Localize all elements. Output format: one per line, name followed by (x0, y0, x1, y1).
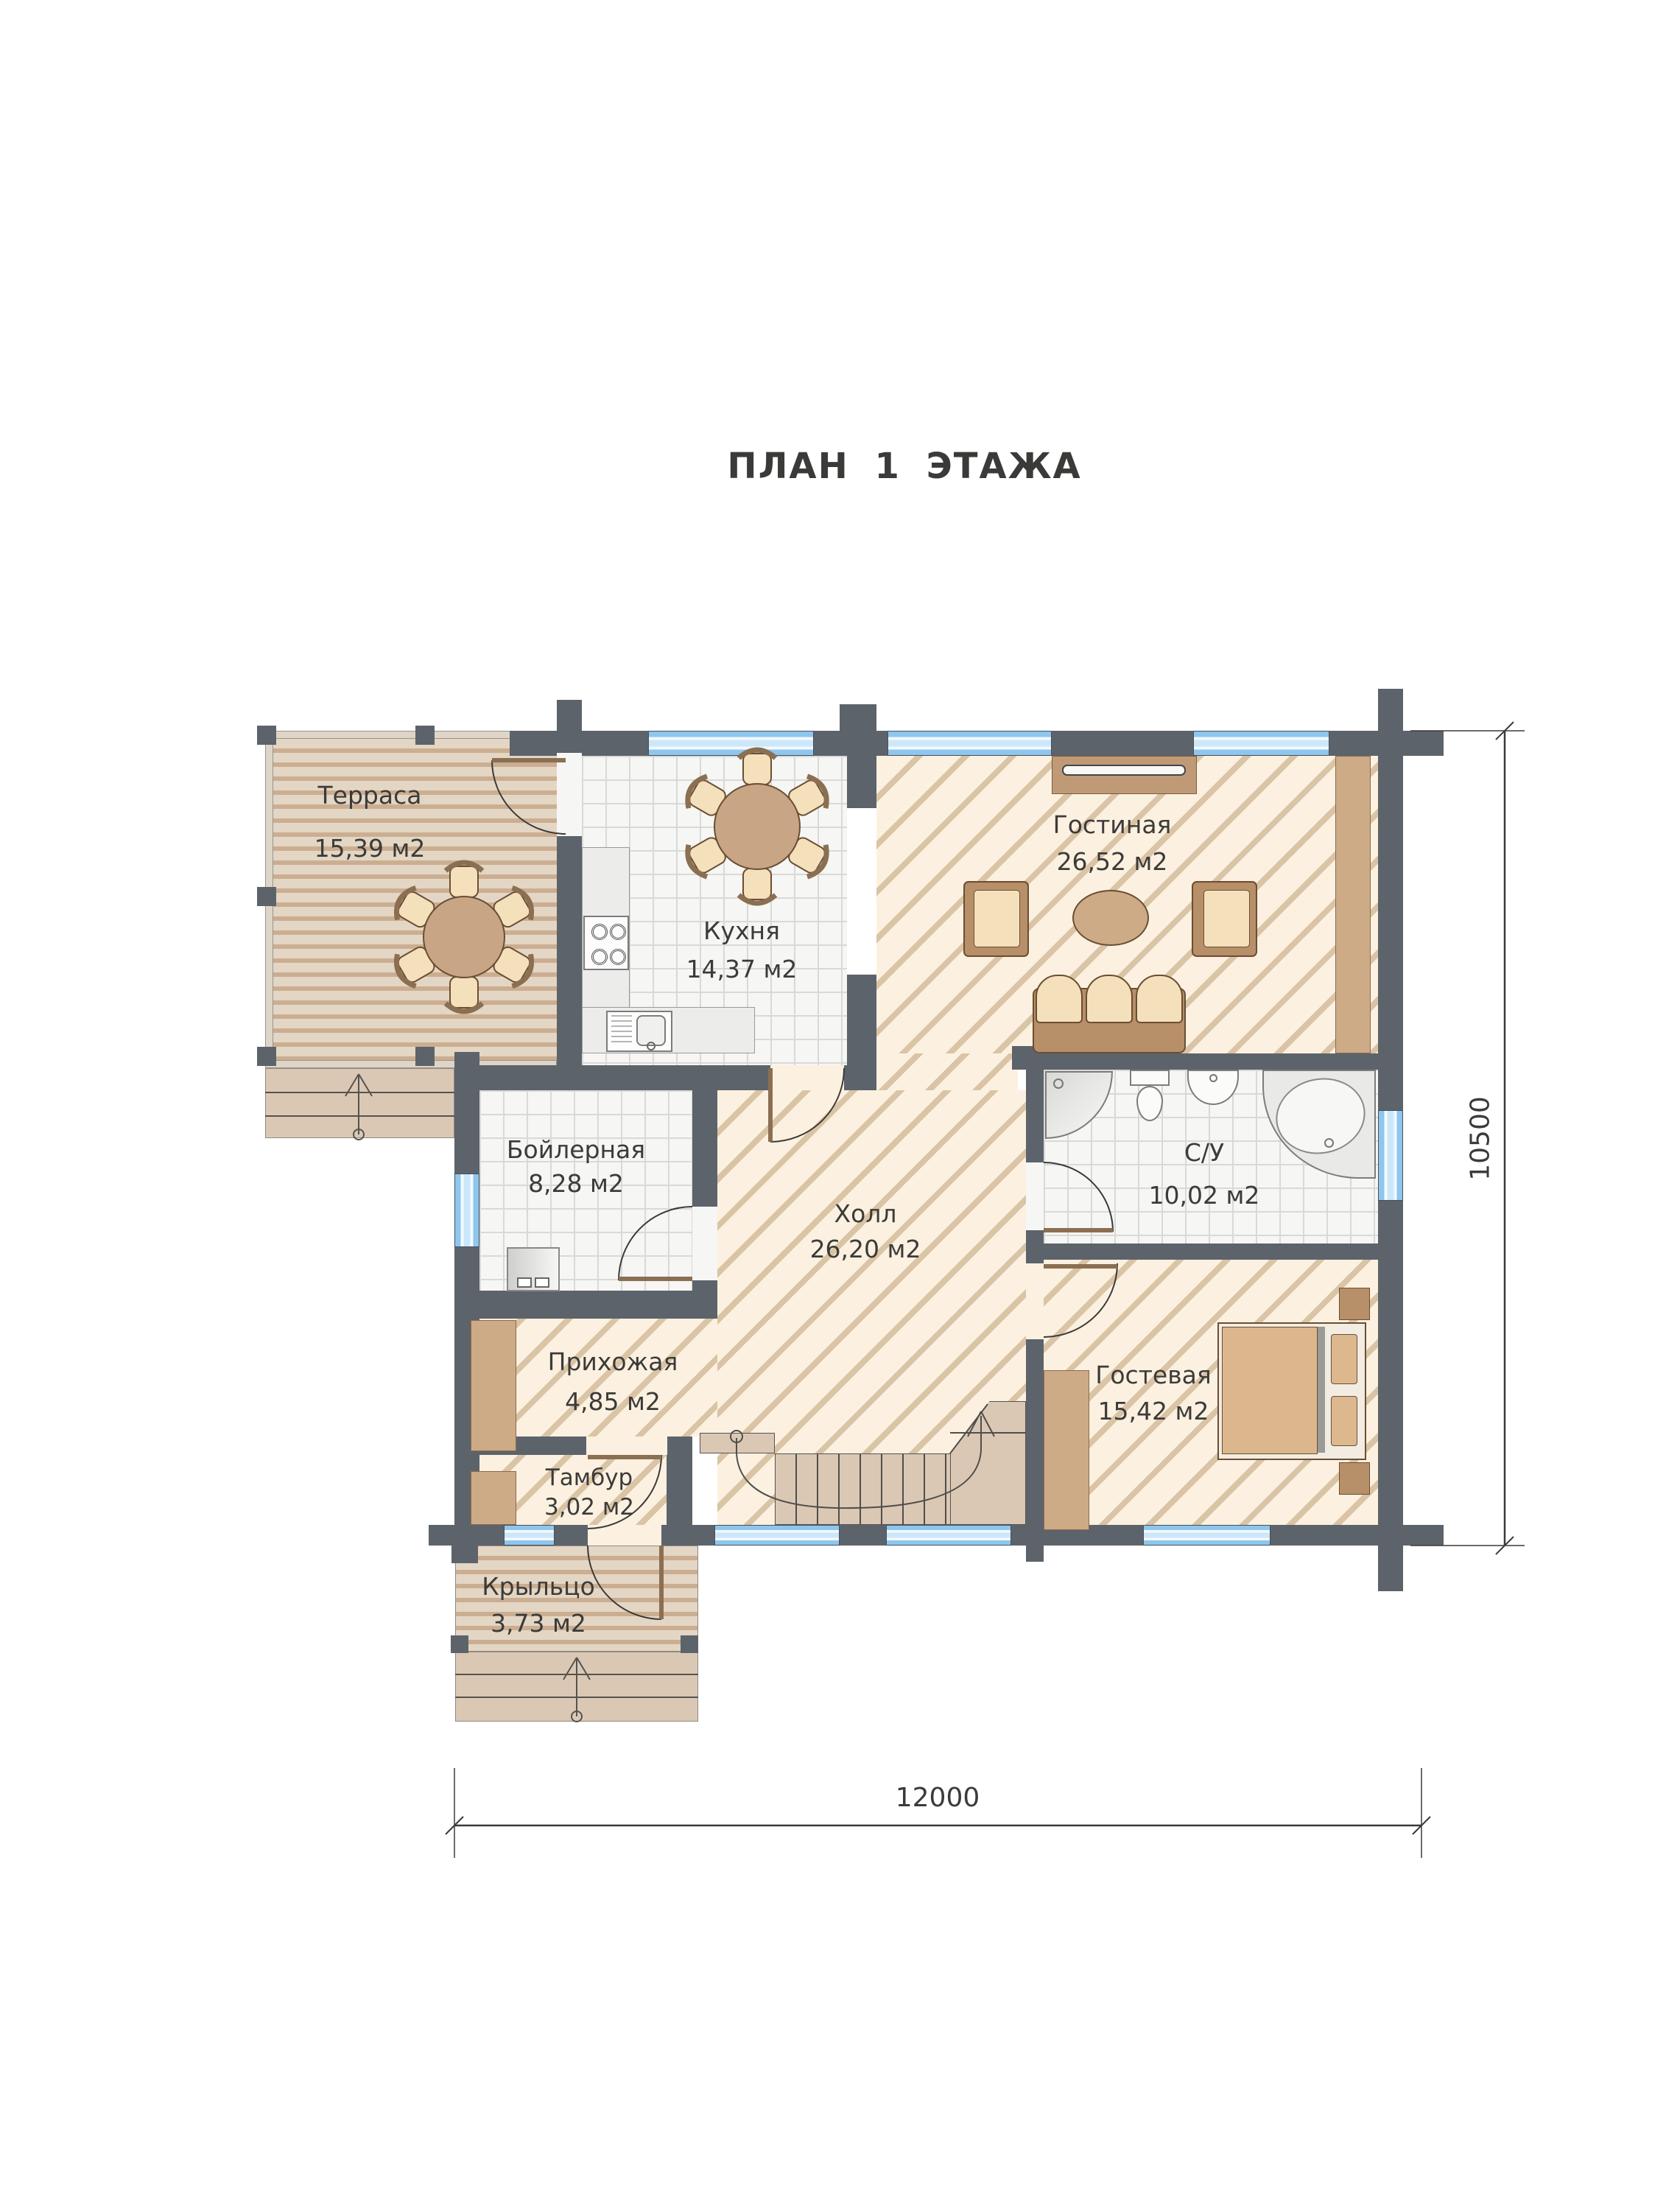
round-table (714, 784, 800, 869)
chair-icon (446, 863, 482, 897)
room-area-guest: 15,42 м2 (1072, 1397, 1234, 1425)
room-label-bathroom: С/У (1123, 1138, 1285, 1167)
room-area-kitchen: 14,37 м2 (661, 955, 823, 983)
kitchen-dining-set (681, 750, 832, 903)
room-label-entry: Прихожая (532, 1347, 694, 1376)
chair-icon (446, 977, 482, 1011)
dimension-label-bottom: 12000 (868, 1783, 1008, 1813)
plan-linework (0, 0, 1680, 2210)
room-area-boiler: 8,28 м2 (495, 1169, 657, 1198)
round-table (423, 897, 505, 978)
door-arc-guest (1044, 1263, 1117, 1337)
room-label-porch: Крыльцо (457, 1572, 619, 1601)
room-area-terrace: 15,39 м2 (289, 834, 451, 863)
stairs-walk-line (737, 1416, 981, 1508)
chair-icon (739, 869, 776, 903)
room-area-hall: 26,20 м2 (784, 1235, 946, 1263)
arrow-head (345, 1074, 359, 1096)
floor-plan-page: ПЛАН 1 ЭТАЖА (0, 0, 1680, 2210)
stair-tread-line (950, 1404, 988, 1453)
door-arc-boiler (619, 1207, 692, 1280)
dimension-label-right: 10500 (1466, 1080, 1496, 1198)
door-arc-bathroom (1044, 1162, 1113, 1232)
arrow-head (577, 1657, 590, 1680)
arrow-head (563, 1657, 577, 1680)
dimension-lines (446, 722, 1525, 1858)
room-area-vestibule: 3,02 м2 (508, 1494, 670, 1520)
room-label-boiler: Бойлерная (495, 1135, 657, 1164)
room-label-terrace: Терраса (289, 781, 451, 810)
room-label-guest: Гостевая (1072, 1361, 1234, 1389)
stairs-linework (731, 1404, 1026, 1508)
room-area-entry: 4,85 м2 (532, 1387, 694, 1416)
door-arc-kitchen-hall (770, 1068, 844, 1142)
terrace-dining-set (390, 863, 538, 1011)
room-area-living: 26,52 м2 (1031, 847, 1193, 876)
terrace-steps-arrow (345, 1074, 372, 1140)
porch-steps-arrow (563, 1657, 590, 1722)
arrow-head (359, 1074, 372, 1096)
room-label-hall: Холл (784, 1199, 946, 1228)
room-label-kitchen: Кухня (661, 916, 823, 945)
room-area-bathroom: 10,02 м2 (1123, 1181, 1285, 1210)
door-arc-terrace (492, 760, 566, 834)
room-label-vestibule: Тамбур (508, 1464, 670, 1491)
room-label-living: Гостиная (1031, 810, 1193, 839)
chair-icon (739, 750, 776, 785)
room-area-porch: 3,73 м2 (457, 1609, 619, 1638)
